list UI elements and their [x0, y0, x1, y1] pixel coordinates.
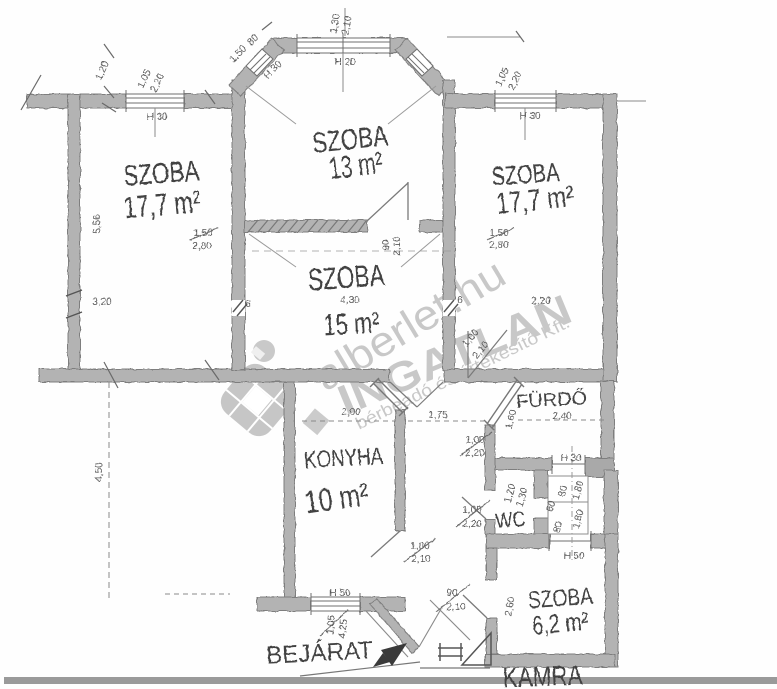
- svg-text:H 30: H 30: [560, 453, 582, 464]
- svg-text:6: 6: [245, 299, 251, 310]
- svg-text:4,50: 4,50: [94, 462, 105, 482]
- svg-text:2,10: 2,10: [446, 602, 466, 613]
- svg-text:WC: WC: [494, 508, 526, 534]
- svg-text:4,30: 4,30: [340, 295, 360, 306]
- svg-text:2,10: 2,10: [411, 554, 431, 565]
- svg-text:2,40: 2,40: [552, 411, 572, 422]
- svg-text:90: 90: [446, 588, 458, 599]
- svg-text:6: 6: [457, 295, 463, 306]
- svg-text:2,10: 2,10: [392, 236, 403, 256]
- svg-text:SZOBA: SZOBA: [307, 257, 386, 297]
- svg-text:2,00: 2,00: [341, 407, 361, 418]
- svg-text:BEJÁRAT: BEJÁRAT: [265, 635, 373, 670]
- svg-text:KONYHA: KONYHA: [303, 443, 383, 474]
- svg-text:1,75: 1,75: [428, 410, 448, 421]
- svg-text:3,20: 3,20: [92, 297, 112, 308]
- svg-text:80: 80: [245, 32, 261, 48]
- svg-text:H 20: H 20: [334, 57, 356, 68]
- svg-text:2,80: 2,80: [192, 241, 212, 252]
- svg-text:4,25: 4,25: [337, 618, 350, 639]
- svg-text:2,80: 2,80: [489, 240, 509, 251]
- svg-text:H 50: H 50: [563, 551, 585, 562]
- svg-text:2,20: 2,20: [462, 519, 482, 530]
- svg-text:H 50: H 50: [329, 588, 351, 599]
- svg-text:17,7 m²: 17,7 m²: [122, 184, 202, 226]
- svg-text:1,60: 1,60: [504, 408, 520, 430]
- svg-text:5,56: 5,56: [92, 214, 103, 234]
- svg-text:10 m²: 10 m²: [302, 476, 371, 521]
- svg-text:H 30: H 30: [519, 111, 541, 122]
- svg-text:2,60: 2,60: [503, 596, 517, 618]
- svg-text:1,20: 1,20: [94, 59, 112, 82]
- svg-text:13 m²: 13 m²: [327, 145, 385, 186]
- svg-text:6,2 m²: 6,2 m²: [531, 606, 590, 641]
- svg-text:1,50: 1,50: [227, 43, 249, 65]
- svg-text:2,10: 2,10: [340, 15, 354, 37]
- svg-text:2,20: 2,20: [531, 296, 551, 307]
- svg-text:FÜRDŐ: FÜRDŐ: [516, 387, 588, 413]
- svg-text:KAMRA: KAMRA: [502, 660, 583, 689]
- svg-text:90: 90: [381, 239, 392, 251]
- svg-text:H 30: H 30: [146, 112, 168, 123]
- svg-text:17,7 m²: 17,7 m²: [494, 180, 575, 221]
- svg-text:15 m²: 15 m²: [323, 307, 381, 343]
